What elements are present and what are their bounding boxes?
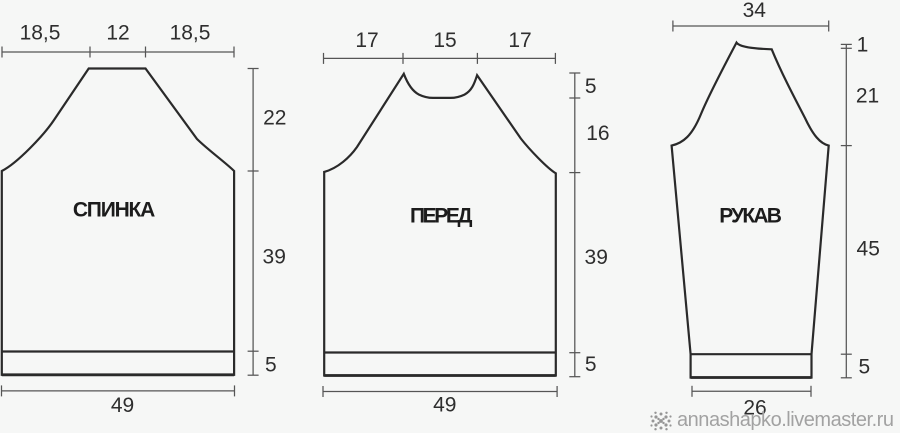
- svg-text:annashapko.livemaster.ru: annashapko.livemaster.ru: [677, 409, 894, 431]
- svg-text:ПЕРЕД: ПЕРЕД: [410, 204, 473, 227]
- svg-text:СПИНКА: СПИНКА: [73, 198, 155, 221]
- svg-text:5: 5: [585, 353, 597, 376]
- svg-text:39: 39: [263, 246, 286, 269]
- svg-text:17: 17: [355, 29, 378, 52]
- svg-text:5: 5: [585, 75, 597, 98]
- svg-text:16: 16: [586, 122, 609, 145]
- svg-text:1: 1: [857, 34, 869, 57]
- svg-text:39: 39: [585, 246, 608, 269]
- svg-text:21: 21: [856, 84, 879, 107]
- svg-text:12: 12: [106, 21, 129, 44]
- svg-text:22: 22: [263, 106, 286, 129]
- svg-text:5: 5: [858, 355, 870, 378]
- svg-text:РУКАВ: РУКАВ: [719, 205, 782, 228]
- svg-text:18,5: 18,5: [20, 21, 61, 44]
- svg-text:15: 15: [433, 29, 456, 52]
- svg-text:34: 34: [743, 0, 767, 22]
- svg-text:49: 49: [111, 394, 134, 417]
- svg-text:45: 45: [857, 238, 880, 261]
- svg-text:5: 5: [265, 354, 277, 377]
- svg-text:17: 17: [508, 29, 531, 52]
- svg-text:18,5: 18,5: [170, 21, 211, 44]
- svg-text:49: 49: [433, 393, 456, 416]
